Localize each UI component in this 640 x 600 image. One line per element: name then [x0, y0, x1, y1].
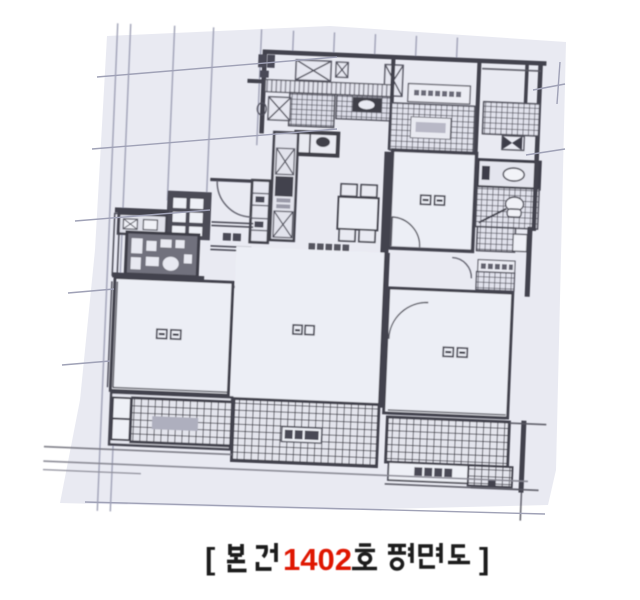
- svg-text:1402: 1402: [283, 542, 352, 577]
- svg-text:[: [: [205, 541, 215, 576]
- svg-text:]: ]: [479, 541, 489, 576]
